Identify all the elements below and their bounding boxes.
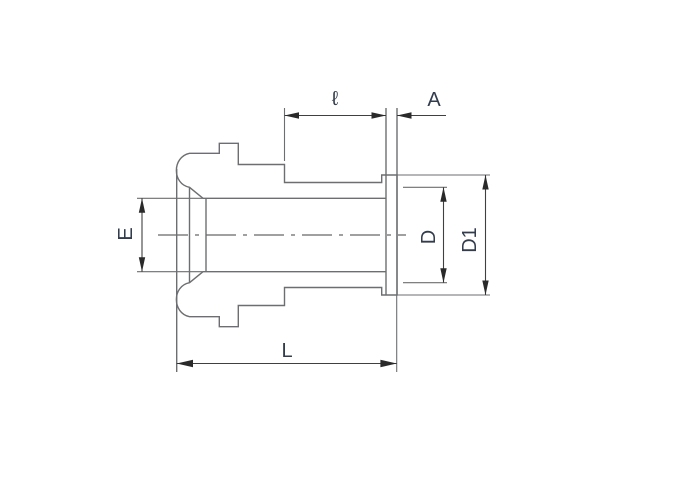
dimension-l: L xyxy=(177,295,397,372)
d-label: D xyxy=(418,230,440,244)
d1-arrow-down-icon xyxy=(482,281,488,296)
l-arrow-right-icon xyxy=(380,360,396,367)
a-arrow-icon xyxy=(397,112,412,119)
d1-label: D1 xyxy=(459,227,481,253)
d-arrow-up-icon xyxy=(440,187,446,202)
dimension-ell: ℓ xyxy=(285,88,387,161)
a-label: A xyxy=(427,89,441,111)
d-arrow-down-icon xyxy=(440,268,446,283)
e-arrow-up-icon xyxy=(139,198,145,213)
dimension-d: D xyxy=(403,187,447,282)
l-label: L xyxy=(281,340,292,362)
fitting-technical-drawing: ℓ A E D xyxy=(0,0,694,489)
d1-arrow-up-icon xyxy=(482,175,488,190)
e-label: E xyxy=(115,227,137,240)
ell-arrow-left-icon xyxy=(285,112,300,119)
l-arrow-left-icon xyxy=(177,360,193,367)
ell-arrow-right-icon xyxy=(372,112,387,119)
technical-drawing-page: ℓ A E D xyxy=(0,0,694,489)
fitting-body xyxy=(176,108,397,372)
dimension-a: A xyxy=(397,89,446,119)
e-arrow-down-icon xyxy=(139,257,145,272)
ell-label: ℓ xyxy=(332,88,339,110)
